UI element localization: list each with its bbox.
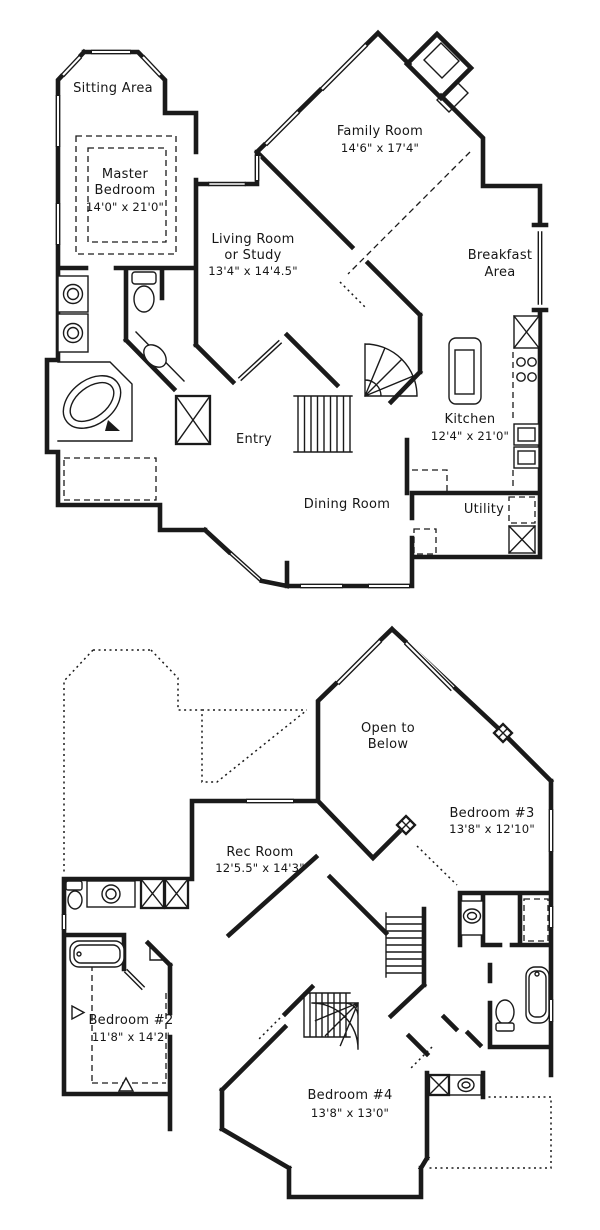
dining-room-label: Dining Room	[304, 497, 390, 512]
kitchen-cooktop	[517, 358, 536, 381]
bedroom-4-dims: 13'8" x 13'0"	[311, 1106, 389, 1120]
entry-label: Entry	[236, 432, 272, 447]
entry-closet-x	[176, 396, 210, 444]
second-floor-plan: Open to Below Rec Room 12'5.5" x 14'3" B…	[62, 629, 552, 1197]
bath-4-sink-and-closet-x	[429, 1075, 481, 1095]
fireplace	[407, 34, 471, 112]
floor-plan-drawing: Sitting Area Master Bedroom 14'0" x 21'0…	[0, 0, 600, 1226]
master-bedroom-label: Bedroom	[95, 183, 156, 198]
kitchen-dims: 12'4" x 21'0"	[431, 429, 509, 443]
master-bath-vanity-sinks	[58, 276, 88, 352]
master-bedroom-label: Master	[102, 167, 149, 182]
rec-room-dims: 12'5.5" x 14'3"	[215, 861, 305, 875]
breakfast-area-label: Breakfast	[468, 248, 533, 263]
open-to-below-label: Open to	[361, 721, 415, 736]
floor-plan-page: Sitting Area Master Bedroom 14'0" x 21'0…	[0, 0, 600, 1226]
master-bath-tub	[53, 362, 132, 441]
hall-linen-closets-x	[141, 879, 188, 908]
second-floor-staircase	[304, 913, 424, 1049]
bedroom-3-label: Bedroom #3	[449, 806, 534, 821]
tub-arrow-icon	[105, 420, 120, 431]
master-wc-toilet	[132, 272, 156, 312]
family-room-dims: 14'6" x 17'4"	[341, 141, 419, 155]
living-room-dims: 13'4" x 14'4.5"	[208, 264, 298, 278]
living-room-label: or Study	[224, 248, 281, 263]
first-floor-plan: Sitting Area Master Bedroom 14'0" x 21'0…	[47, 33, 546, 588]
first-floor-door-swing-dotted	[340, 282, 366, 308]
kitchen-pantry-x	[514, 316, 539, 348]
kitchen-double-oven	[514, 424, 539, 468]
sitting-area-label: Sitting Area	[73, 81, 153, 96]
hall-bath-tub	[70, 941, 124, 967]
open-to-below-label: Below	[368, 737, 409, 752]
hall-bath-vanity-sink	[87, 881, 135, 907]
kitchen-island	[449, 338, 481, 404]
hall-bath-toilet	[66, 881, 82, 909]
bedroom-2-label: Bedroom #2	[88, 1013, 173, 1028]
bath-3-toilet	[496, 1000, 514, 1031]
bath-3-tub	[526, 967, 549, 1023]
kitchen-label: Kitchen	[445, 412, 496, 427]
bedroom-2-dims: 11'8" x 14'2"	[92, 1030, 170, 1044]
master-bedroom-dims: 14'0" x 21'0"	[86, 200, 164, 214]
breakfast-area-label: Area	[484, 265, 515, 280]
utility-water-heater-x	[509, 526, 535, 553]
family-room-label: Family Room	[337, 124, 423, 139]
utility-label: Utility	[464, 502, 504, 517]
bedroom-3-dims: 13'8" x 12'10"	[449, 822, 535, 836]
bedroom-4-label: Bedroom #4	[307, 1088, 392, 1103]
bath-3-vanity-sink	[461, 901, 483, 935]
living-room-label: Living Room	[211, 232, 294, 247]
rec-room-label: Rec Room	[226, 845, 293, 860]
